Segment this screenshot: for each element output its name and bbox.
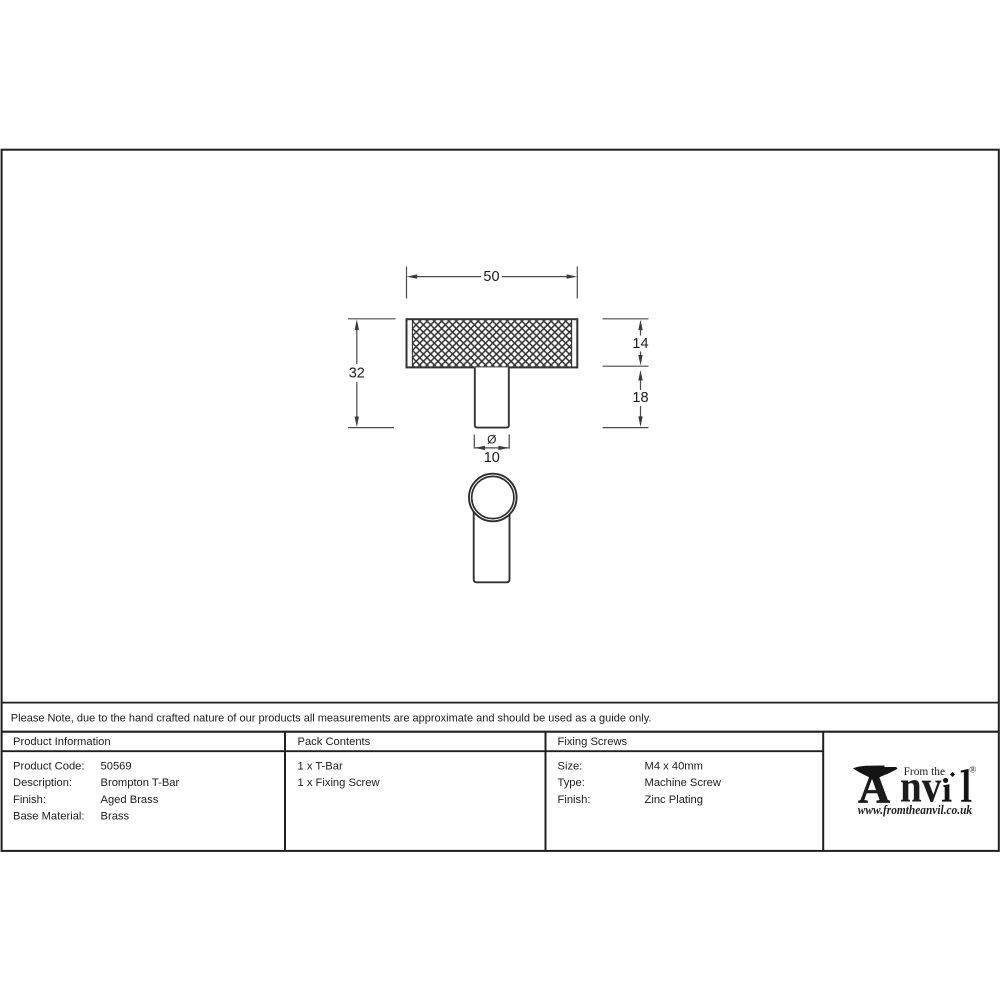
svg-text:10: 10 (484, 450, 500, 466)
svg-text:Finish:: Finish: (13, 794, 46, 806)
svg-text:Description:: Description: (13, 777, 72, 789)
svg-text:Brass: Brass (101, 811, 130, 823)
svg-text:Machine Screw: Machine Screw (645, 777, 722, 789)
svg-text:Brompton T-Bar: Brompton T-Bar (101, 777, 180, 789)
svg-text:Base Material:: Base Material: (13, 811, 85, 823)
svg-text:®: ® (969, 764, 976, 775)
svg-text:14: 14 (632, 336, 648, 352)
svg-text:Product Information: Product Information (13, 736, 111, 748)
svg-text:Finish:: Finish: (558, 794, 591, 806)
svg-text:1 x T-Bar: 1 x T-Bar (298, 760, 343, 772)
svg-text:18: 18 (632, 390, 648, 406)
svg-text:Fixing Screws: Fixing Screws (558, 736, 628, 748)
svg-text:Please Note, due to the hand c: Please Note, due to the hand crafted nat… (11, 713, 652, 725)
svg-text:Pack Contents: Pack Contents (298, 736, 371, 748)
svg-text:Zinc Plating: Zinc Plating (645, 794, 703, 806)
svg-text:Product Code:: Product Code: (13, 760, 85, 772)
svg-text:www.fromtheanvil.co.uk: www.fromtheanvil.co.uk (858, 802, 973, 817)
svg-text:50: 50 (483, 269, 499, 285)
svg-text:32: 32 (349, 366, 365, 382)
svg-text:M4 x 40mm: M4 x 40mm (645, 760, 703, 772)
svg-text:Ø: Ø (487, 433, 496, 447)
svg-text:50569: 50569 (101, 760, 132, 772)
svg-text:1 x Fixing Screw: 1 x Fixing Screw (298, 777, 381, 789)
svg-text:Type:: Type: (558, 777, 585, 789)
svg-text:Size:: Size: (558, 760, 583, 772)
svg-text:Aged Brass: Aged Brass (101, 794, 159, 806)
